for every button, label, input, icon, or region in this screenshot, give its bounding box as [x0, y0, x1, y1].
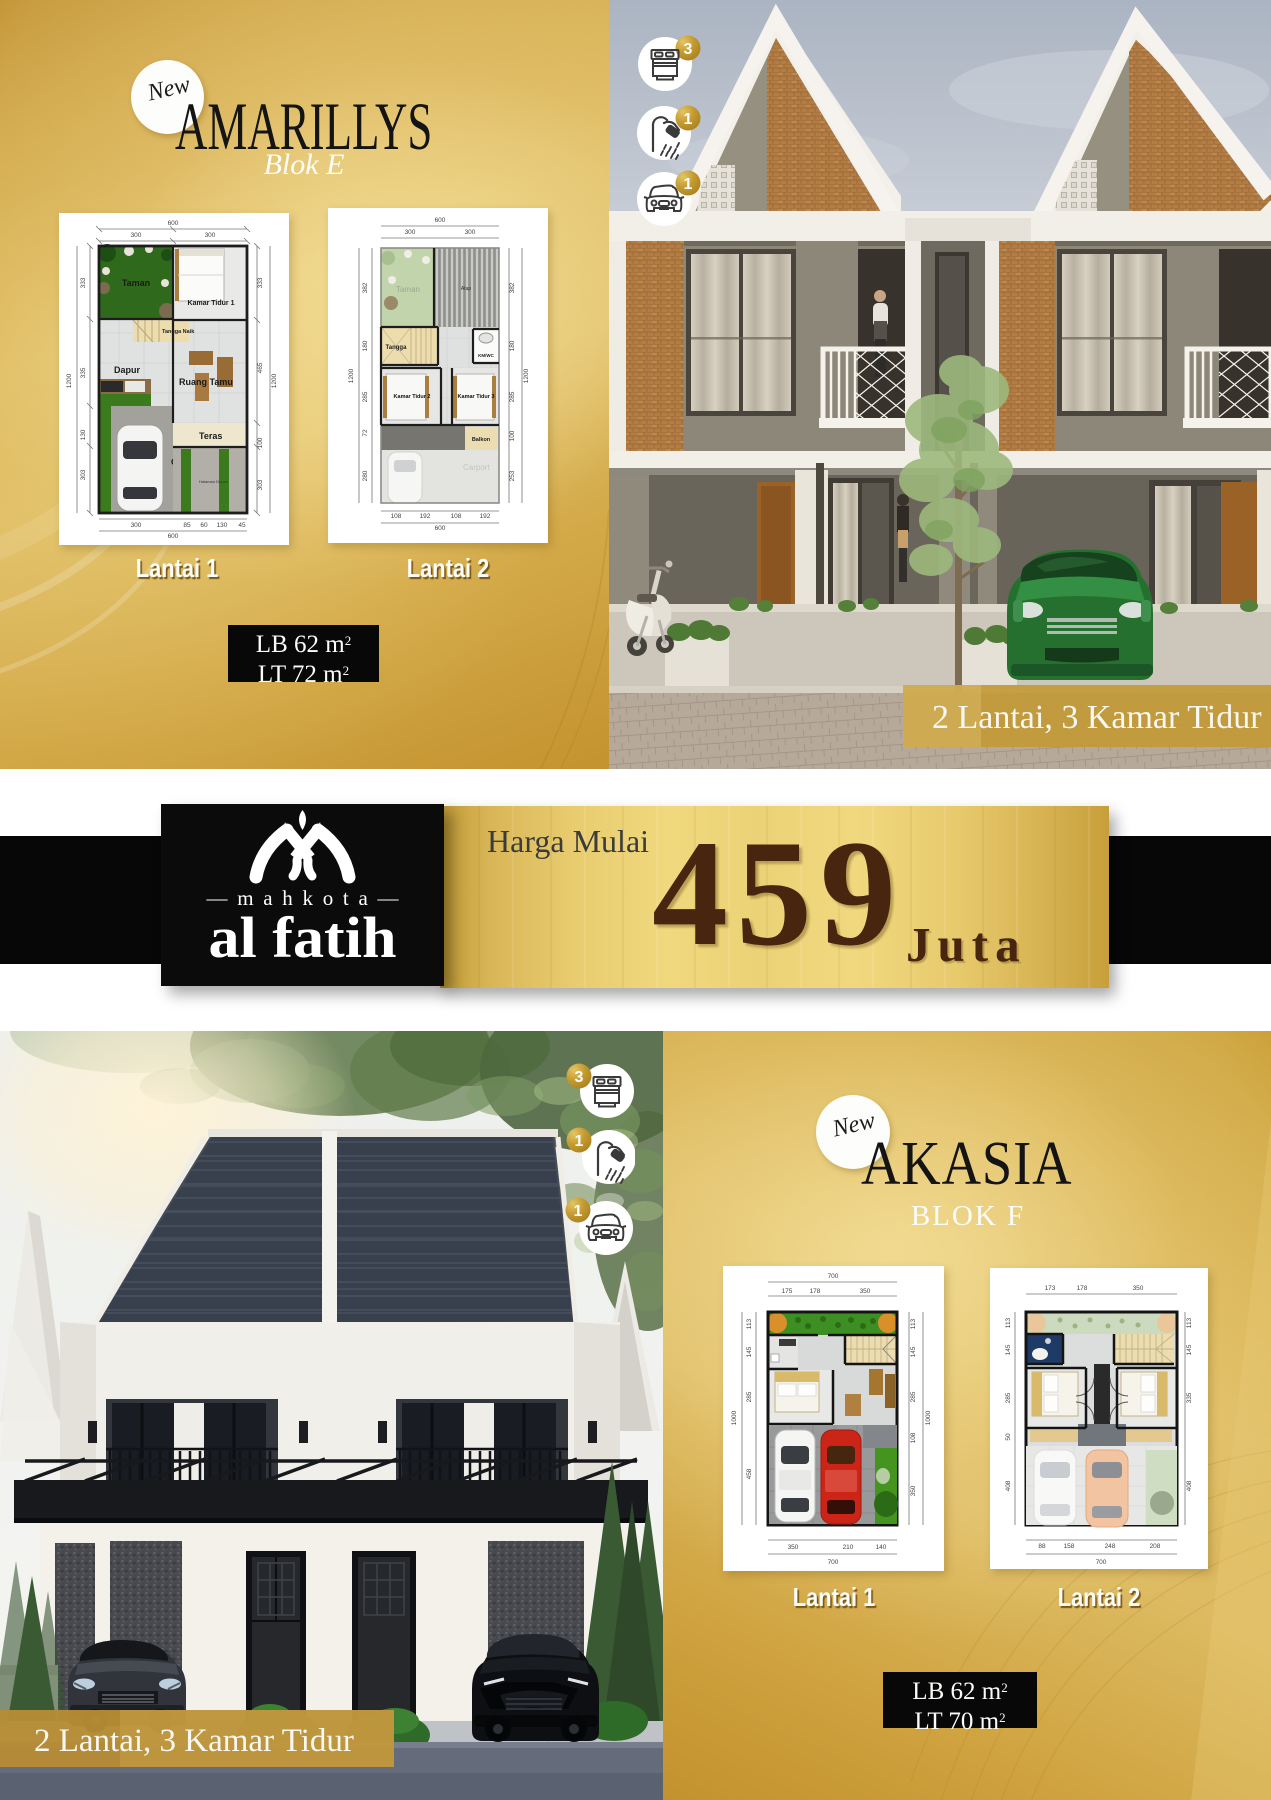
svg-text:192: 192 [420, 513, 431, 520]
svg-text:100: 100 [509, 430, 516, 441]
svg-text:208: 208 [1150, 1543, 1161, 1550]
svg-text:1: 1 [684, 176, 693, 193]
svg-text:Taman: Taman [396, 285, 420, 294]
svg-text:Kamar Tidur 1: Kamar Tidur 1 [188, 300, 235, 307]
svg-text:303: 303 [257, 479, 264, 490]
svg-text:408: 408 [1186, 1480, 1193, 1491]
svg-text:285: 285 [1005, 1392, 1012, 1403]
svg-text:113: 113 [1005, 1317, 1012, 1328]
svg-text:3: 3 [684, 41, 693, 58]
svg-text:600: 600 [435, 217, 446, 224]
svg-text:108: 108 [451, 513, 462, 520]
svg-text:Teras: Teras [199, 431, 222, 441]
svg-text:285: 285 [362, 391, 369, 402]
svg-text:300: 300 [465, 229, 476, 236]
svg-text:Halaman Depan: Halaman Depan [199, 479, 228, 484]
svg-text:178: 178 [810, 1288, 821, 1295]
svg-text:145: 145 [910, 1346, 917, 1357]
svg-text:130: 130 [217, 522, 228, 529]
svg-text:Taman: Taman [122, 278, 150, 288]
svg-text:1200: 1200 [271, 373, 278, 388]
svg-text:3: 3 [575, 1069, 584, 1086]
svg-text:Kamar Tidur 2: Kamar Tidur 2 [394, 394, 431, 400]
svg-text:145: 145 [1005, 1344, 1012, 1355]
svg-text:145: 145 [746, 1346, 753, 1357]
svg-text:350: 350 [788, 1544, 799, 1551]
svg-text:458: 458 [746, 1468, 753, 1479]
svg-text:al fatih: al fatih [209, 905, 397, 970]
svg-text:248: 248 [1105, 1543, 1116, 1550]
svg-text:335: 335 [1186, 1392, 1193, 1403]
svg-text:335: 335 [80, 367, 87, 378]
svg-text:Tangga Naik: Tangga Naik [162, 329, 195, 335]
svg-text:145: 145 [1186, 1344, 1193, 1355]
svg-text:300: 300 [131, 522, 142, 529]
svg-text:382: 382 [362, 282, 369, 293]
svg-text:1200: 1200 [348, 368, 355, 383]
svg-text:700: 700 [1096, 1559, 1107, 1566]
svg-text:140: 140 [876, 1544, 887, 1551]
svg-text:285: 285 [746, 1391, 753, 1402]
svg-text:192: 192 [480, 513, 491, 520]
svg-text:50: 50 [1005, 1433, 1012, 1441]
svg-text:108: 108 [910, 1432, 917, 1443]
svg-text:Ruang Tamu: Ruang Tamu [179, 377, 233, 387]
svg-text:350: 350 [910, 1485, 917, 1496]
svg-text:1200: 1200 [523, 368, 530, 383]
svg-text:280: 280 [362, 470, 369, 481]
svg-text:180: 180 [509, 340, 516, 351]
svg-text:300: 300 [205, 232, 216, 239]
svg-text:600: 600 [435, 525, 446, 532]
svg-text:158: 158 [1064, 1543, 1075, 1550]
svg-text:45: 45 [238, 522, 246, 529]
svg-text:Dapur: Dapur [114, 365, 141, 375]
svg-text:60: 60 [200, 522, 208, 529]
svg-text:350: 350 [860, 1288, 871, 1295]
svg-text:333: 333 [80, 277, 87, 288]
svg-text:100: 100 [257, 437, 264, 448]
svg-text:1: 1 [575, 1133, 584, 1150]
svg-text:303: 303 [80, 469, 87, 480]
svg-text:350: 350 [1133, 1285, 1144, 1292]
svg-text:Atap: Atap [461, 286, 472, 292]
svg-text:300: 300 [405, 229, 416, 236]
svg-text:1: 1 [574, 1203, 583, 1220]
svg-text:175: 175 [782, 1288, 793, 1295]
svg-text:700: 700 [828, 1273, 839, 1280]
svg-text:130: 130 [80, 429, 87, 440]
svg-text:1200: 1200 [66, 373, 73, 388]
svg-text:Kamar Tidur 3: Kamar Tidur 3 [458, 394, 495, 400]
svg-text:210: 210 [843, 1544, 854, 1551]
svg-text:108: 108 [391, 513, 402, 520]
svg-text:KM/WC: KM/WC [478, 353, 494, 358]
svg-text:382: 382 [509, 282, 516, 293]
svg-text:178: 178 [1077, 1285, 1088, 1292]
svg-text:113: 113 [746, 1318, 753, 1329]
svg-text:Balkon: Balkon [472, 437, 491, 443]
svg-text:72: 72 [362, 429, 369, 437]
svg-text:113: 113 [910, 1318, 917, 1329]
svg-text:700: 700 [828, 1559, 839, 1566]
svg-text:300: 300 [131, 232, 142, 239]
svg-text:600: 600 [168, 220, 179, 227]
svg-text:173: 173 [1045, 1285, 1056, 1292]
svg-text:333: 333 [257, 277, 264, 288]
svg-text:85: 85 [183, 522, 191, 529]
svg-text:465: 465 [257, 362, 264, 373]
svg-text:1: 1 [684, 111, 693, 128]
svg-text:Tangga: Tangga [386, 345, 408, 351]
svg-text:285: 285 [910, 1391, 917, 1402]
svg-text:600: 600 [168, 533, 179, 540]
svg-text:113: 113 [1186, 1317, 1193, 1328]
svg-text:Carport: Carport [463, 463, 490, 472]
svg-text:180: 180 [362, 340, 369, 351]
svg-text:285: 285 [509, 391, 516, 402]
svg-text:1000: 1000 [925, 1410, 932, 1425]
svg-text:408: 408 [1005, 1480, 1012, 1491]
svg-text:253: 253 [509, 470, 516, 481]
svg-text:88: 88 [1038, 1543, 1046, 1550]
svg-text:1000: 1000 [731, 1410, 738, 1425]
